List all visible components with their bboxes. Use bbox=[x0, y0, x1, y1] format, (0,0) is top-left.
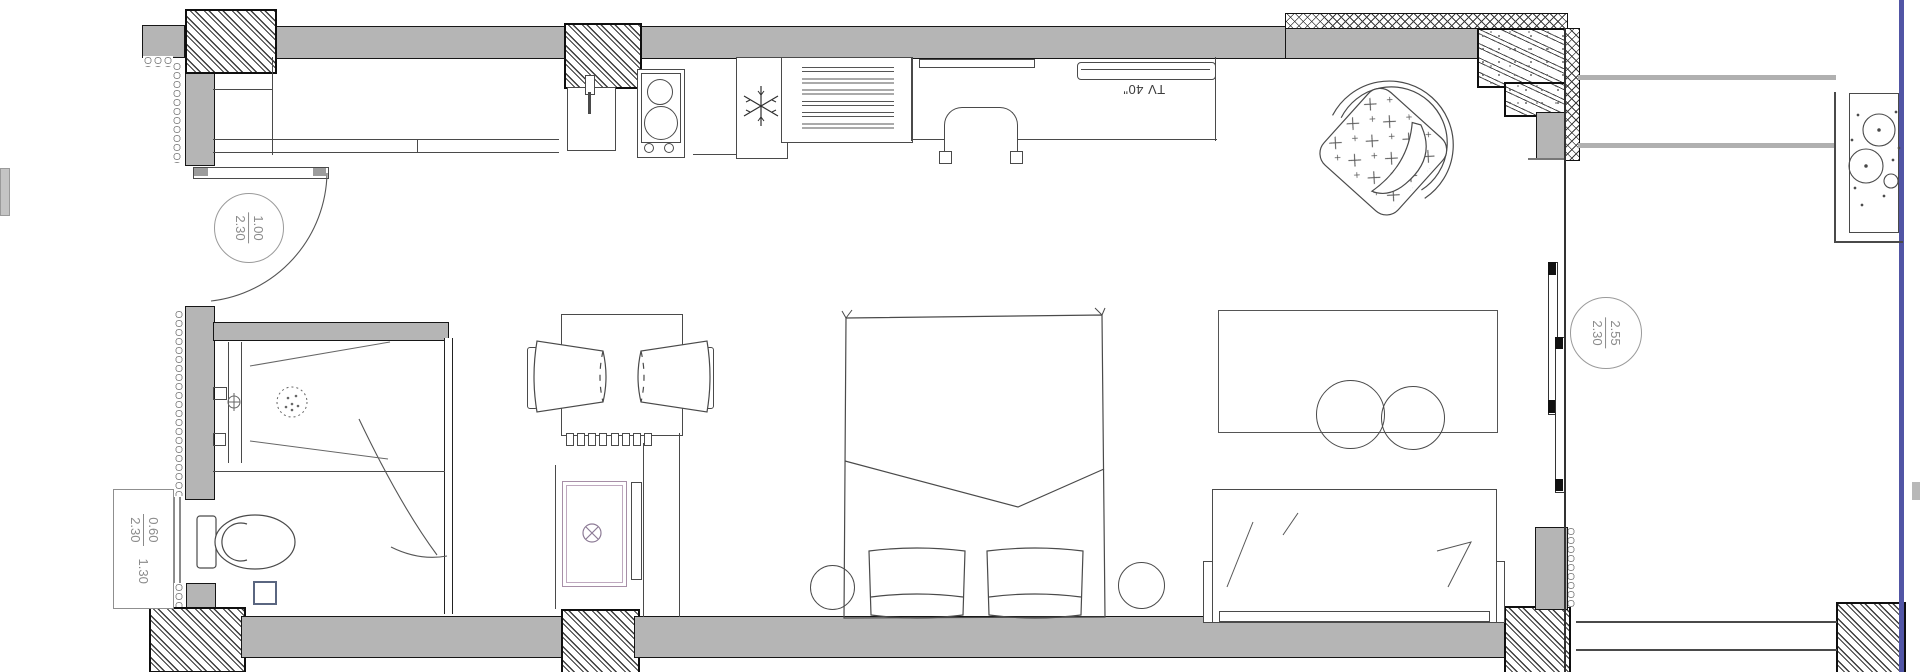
tag-balcony-door: 2.55 2.30 bbox=[1570, 297, 1642, 369]
toilet bbox=[197, 515, 295, 569]
armchair bbox=[1303, 55, 1480, 231]
chair-seats bbox=[534, 341, 710, 412]
balcony-door-width: 2.55 bbox=[1606, 317, 1623, 348]
shower-drain-icon bbox=[277, 387, 307, 417]
tv-label: TV 40" bbox=[1098, 79, 1190, 97]
snowflake-icon bbox=[744, 86, 778, 126]
bath-window-width: 0.60 bbox=[143, 514, 160, 545]
tag-entry-door-text: 1.00 2.30 bbox=[233, 212, 265, 243]
bath-window-height: 2.30 bbox=[127, 517, 143, 542]
tag-entry-door: 1.00 2.30 bbox=[214, 193, 284, 263]
tag-bath-window: 0.60 2.30 1.30 bbox=[113, 489, 174, 609]
plants bbox=[1849, 111, 1900, 206]
bathroom-door-swing bbox=[359, 419, 447, 557]
entry-door-width: 1.00 bbox=[249, 212, 266, 243]
balcony-door-height: 2.30 bbox=[1590, 320, 1606, 345]
bed bbox=[842, 308, 1105, 618]
chair-seat-right bbox=[638, 341, 710, 412]
shower-mixer-icon bbox=[228, 393, 240, 411]
ceiling-light-icon bbox=[583, 524, 601, 542]
blanket-fold bbox=[845, 461, 1104, 507]
pillow-left bbox=[869, 548, 965, 618]
tag-balcony-door-text: 2.55 2.30 bbox=[1590, 317, 1622, 348]
bath-window-sill: 1.30 bbox=[136, 559, 151, 584]
entry-door-height: 2.30 bbox=[233, 215, 249, 240]
shower bbox=[228, 342, 390, 459]
plant-icon bbox=[1884, 174, 1898, 188]
chair-seat-left bbox=[534, 341, 606, 412]
pillow-right bbox=[987, 548, 1083, 618]
sofa-creases bbox=[1227, 513, 1471, 587]
tag-bath-window-text: 0.60 2.30 1.30 bbox=[119, 497, 169, 601]
floor-plan: 1.00 2.30 0.60 2.30 1.30 2.55 2.30 TV 40… bbox=[0, 0, 1920, 672]
